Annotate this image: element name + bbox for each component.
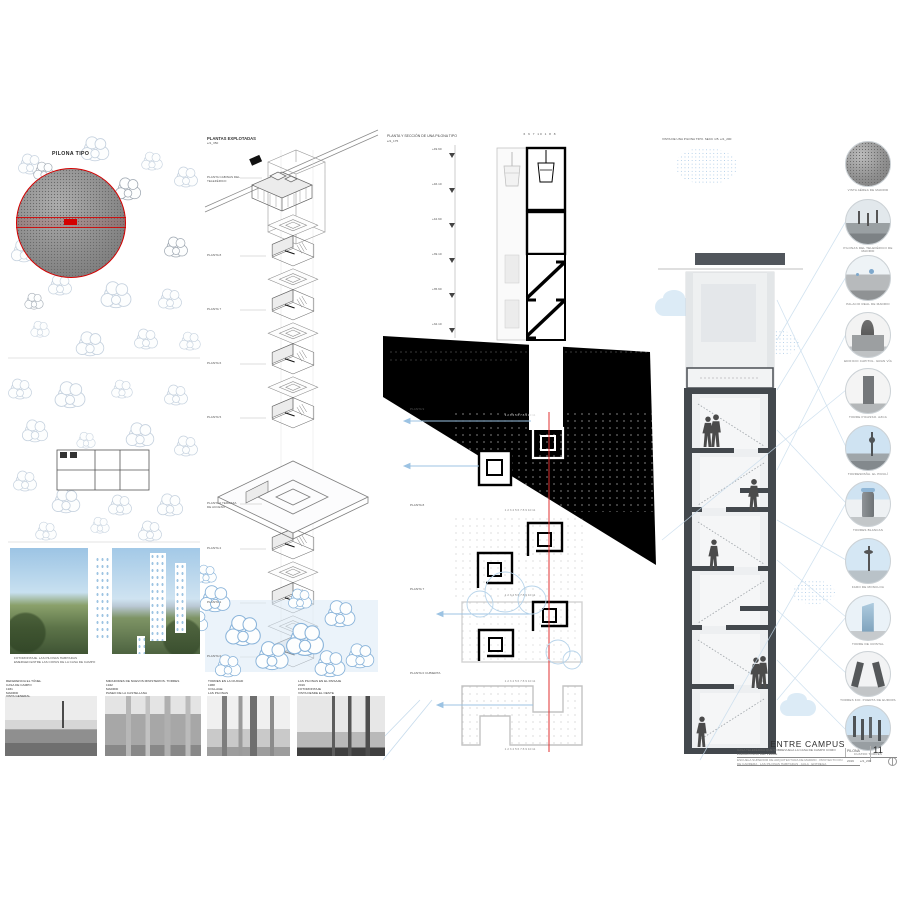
axon-podium-plate bbox=[218, 461, 368, 539]
reference-photo bbox=[207, 696, 290, 756]
leader-lines bbox=[240, 178, 266, 657]
reference-circle-caption: PALACIO REAL DE MADRID bbox=[838, 303, 898, 306]
reference-circle-caption: TORRE PICASSO. AZCA bbox=[838, 416, 898, 419]
beam-bar bbox=[695, 253, 785, 265]
title-subtitle: CASA TELEFÉRICA QUE SOBREVUELA LA CASA D… bbox=[737, 749, 843, 757]
level-cota-label: +49.60 bbox=[432, 148, 442, 152]
tower-section-bay bbox=[527, 148, 565, 340]
reference-circle-item: TORRE PICASSO. AZCA bbox=[838, 368, 898, 419]
level-cota-label: +42.60 bbox=[432, 218, 442, 222]
exploded-level-label: PLANTA 0 bbox=[207, 655, 241, 659]
exploded-level-label: PLANTA 8 bbox=[207, 254, 241, 258]
exploded-level-label: PLANTA 7 bbox=[207, 308, 241, 312]
grid-numbers-row: 1 2 3 4 5 6 7 8 9 10 11 bbox=[452, 748, 588, 752]
tower-elevation-light bbox=[686, 272, 774, 388]
reference-circle-caption: TORRESPAÑA. EL PIRULÍ bbox=[838, 473, 898, 476]
grid-numbers-top: 6 6 7 10 1 8 8 bbox=[494, 133, 586, 137]
reference-circle-item: PILONAS DEL TELEFÉRICO DE MADRID bbox=[838, 199, 898, 254]
reference-circle-caption: TORRES BLANCAS bbox=[838, 529, 898, 532]
reference-photo bbox=[5, 696, 97, 756]
photo-caption: TORRES EN LA CIUDAD 1968 COLLAGE LAS PIL… bbox=[208, 680, 288, 695]
titleblock-year: 2019 bbox=[847, 760, 854, 764]
level-cota-label: +32.10 bbox=[432, 323, 442, 327]
reference-photo bbox=[105, 696, 201, 756]
presentation-board: PILONA TIPO FOTOMONTAJE. LAS PILONAS HAB… bbox=[0, 0, 900, 900]
cable-cabin bbox=[249, 155, 262, 166]
reference-circle-item: TORRE DE CRISTAL bbox=[838, 595, 898, 646]
reference-circle-item: PALACIO REAL DE MADRID bbox=[838, 255, 898, 306]
reference-photo bbox=[297, 696, 385, 756]
exploded-level-label: PLANTA 0 TERRAZA DE ACCESO bbox=[207, 502, 241, 510]
reference-circle-item: EDIFICIO CAPITOL. GRAN VÍA bbox=[838, 312, 898, 363]
titleblock-separator bbox=[845, 748, 846, 757]
exploded-level-label: PLANTA 5 bbox=[207, 416, 241, 420]
center-section-title: PLANTA Y SECCIÓN DE UNA PILONA TIPO bbox=[387, 134, 457, 138]
blue-diagonals bbox=[383, 700, 432, 760]
photo-caption: LAS PILONAS EN EL PAISAJE 2019 FOTOMONTA… bbox=[298, 680, 378, 695]
reference-circle-caption: TORRE DE CRISTAL bbox=[838, 643, 898, 646]
reference-circle-item: TORRES BLANCAS bbox=[838, 481, 898, 532]
level-markers bbox=[449, 153, 455, 333]
reference-circle-image bbox=[845, 595, 891, 641]
exploded-level-label: PLANTA 1 bbox=[207, 601, 241, 605]
level-cota-label: +46.10 bbox=[432, 183, 442, 187]
montage-tower bbox=[95, 556, 109, 642]
level-cota-label: +39.10 bbox=[432, 253, 442, 257]
section-rooms bbox=[692, 394, 768, 748]
tower-elevation-bay bbox=[497, 148, 527, 340]
reference-circle-image bbox=[845, 312, 891, 358]
photomontage-left bbox=[10, 548, 88, 654]
titleblock-rule bbox=[737, 765, 860, 766]
exploded-level-label: PLANTA CABINAS DEL TELEFÉRICO bbox=[207, 176, 241, 184]
plan-roof-outline bbox=[462, 686, 582, 745]
grid-numbers-row: 1 2 3 4 5 6 7 8 9 10 11 bbox=[452, 509, 588, 513]
grid-numbers-row: 1 2 3 4 5 6 7 8 9 10 11 bbox=[452, 680, 588, 684]
reference-circle-image bbox=[845, 141, 891, 187]
reference-circle-image bbox=[845, 425, 891, 471]
cable-lines bbox=[205, 130, 378, 212]
reference-circle-image bbox=[845, 481, 891, 527]
montage-caption: FOTOMONTAJE. LAS PILONAS HABITADAS EMERG… bbox=[14, 657, 184, 665]
titleblock-scale: e/1_200 bbox=[860, 760, 871, 764]
montage-tower bbox=[150, 553, 166, 641]
montage-tower bbox=[137, 636, 145, 654]
plan-level-label: PLANTA 8 bbox=[410, 504, 450, 508]
grid-numbers-row: 1 2 3 4 5 6 7 8 9 10 11 bbox=[452, 594, 588, 598]
reference-circle-item: TORRES KIO. PUERTA DE EUROPA bbox=[838, 651, 898, 702]
page-number: 11 bbox=[873, 745, 883, 756]
exploded-level-label: PLANTA 6 bbox=[207, 362, 241, 366]
reference-circle-caption: EDIFICIO CAPITOL. GRAN VÍA bbox=[838, 360, 898, 363]
plan-8-grid bbox=[452, 518, 588, 598]
reference-circle-caption: CUATRO TORRES bbox=[838, 753, 898, 756]
reference-circle-image bbox=[845, 255, 891, 301]
plan-level-label: PLANTA 0 CUBIERTA bbox=[410, 672, 450, 676]
reference-circle-image bbox=[845, 705, 891, 751]
exploded-level-label: PLANTA 2 bbox=[207, 547, 241, 551]
photo-caption: MIRADORES DE NUEVOS MINISTERIOS. TORRES … bbox=[106, 680, 186, 695]
reference-circle-item: TORRESPAÑA. EL PIRULÍ bbox=[838, 425, 898, 476]
reference-circle-image bbox=[845, 368, 891, 414]
reference-circle-caption: FARO DE MONCLOA bbox=[838, 586, 898, 589]
grid-numbers-row: 1 2 3 4 5 6 7 8 9 10 11 bbox=[452, 414, 588, 418]
plan-level-label: PLANTA 9 bbox=[410, 408, 450, 412]
montage-tower bbox=[175, 563, 186, 633]
reference-circle-item: FARO DE MONCLOA bbox=[838, 538, 898, 589]
exploded-scale: e/1_350 bbox=[207, 142, 218, 146]
photo-caption: REFERENCIA EL TÚNEL CASA DE CAMPO 1931 M… bbox=[6, 680, 86, 699]
sheet-label: PILONA bbox=[847, 749, 860, 753]
center-section-scale: e/1_175 bbox=[387, 140, 398, 144]
reference-circle-image bbox=[845, 199, 891, 245]
red-pilona-marker bbox=[64, 219, 77, 225]
reference-circle-image bbox=[845, 538, 891, 584]
pilona-tipo-label: PILONA TIPO bbox=[52, 151, 89, 157]
building-footprint-plan bbox=[57, 450, 149, 490]
reference-circle-image bbox=[845, 651, 891, 697]
reference-circle-caption: VISTA AÉREA DE MADRID bbox=[838, 189, 898, 192]
north-icon bbox=[888, 757, 897, 766]
reference-circle-item: VISTA AÉREA DE MADRID bbox=[838, 141, 898, 192]
reference-circle-caption: TORRES KIO. PUERTA DE EUROPA bbox=[838, 699, 898, 702]
reference-circle-caption: PILONAS DEL TELEFÉRICO DE MADRID bbox=[838, 247, 898, 254]
right-section-title: VISTA DE UNA PILONA TIPO. SECC 1/5. e/1_… bbox=[662, 138, 731, 142]
level-cota-label: +35.60 bbox=[432, 288, 442, 292]
plan-level-label: PLANTA 7 bbox=[410, 588, 450, 592]
